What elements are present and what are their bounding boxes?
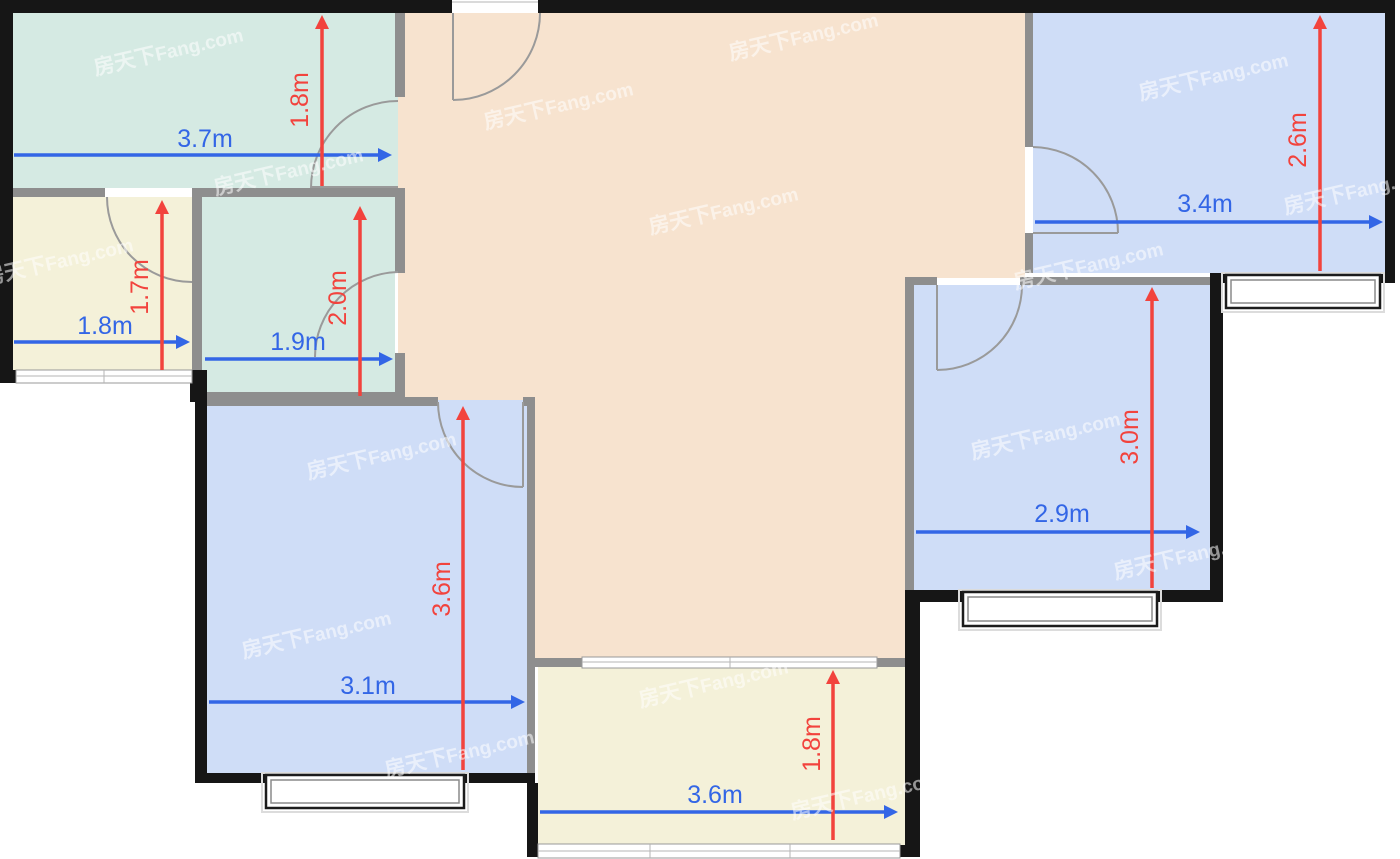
dim-balcony-width: 3.6m: [687, 781, 743, 809]
wall-segment: [0, 13, 13, 383]
wall-segment: [905, 277, 937, 285]
dim-bedroom-tr-width: 3.4m: [1177, 190, 1233, 218]
wall-segment: [527, 397, 535, 783]
room-bath-small: [13, 197, 192, 373]
wall-segment: [1385, 13, 1395, 283]
dim-kitchen-height: 1.8m: [286, 72, 314, 128]
dim-bedroom-right-height: 3.0m: [1116, 409, 1144, 465]
wall-segment: [905, 602, 920, 857]
wall-segment: [395, 13, 405, 97]
wall-segment: [395, 188, 405, 273]
dim-bedroom-tr-height: 2.6m: [1284, 112, 1312, 168]
wall-segment: [0, 0, 452, 13]
dim-bedroom-left-width: 3.1m: [340, 672, 396, 700]
wall-segment: [195, 373, 207, 783]
wall-segment: [13, 188, 105, 197]
wall-segment: [192, 197, 202, 373]
wall-segment: [395, 353, 405, 398]
dim-bath-large-height: 2.0m: [324, 270, 352, 326]
dim-bath-small-height: 1.7m: [126, 259, 154, 315]
dim-bedroom-right-width: 2.9m: [1034, 500, 1090, 528]
dim-bath-large-width: 1.9m: [270, 328, 326, 356]
room-bath-large: [202, 197, 395, 392]
floorplan: 3.7m 1.8m 1.8m 1.7m 1.9m 2.0m 3.4m 2.6m …: [0, 0, 1400, 859]
dim-kitchen-width: 3.7m: [177, 125, 233, 153]
floorplan-svg: 3.7m 1.8m 1.8m 1.7m 1.9m 2.0m 3.4m 2.6m …: [0, 0, 1400, 859]
wall-segment: [1025, 13, 1033, 147]
wall-segment: [905, 285, 914, 602]
wall-segment: [538, 0, 1395, 13]
wall-segment: [195, 397, 438, 406]
room-living-upper: [398, 13, 1025, 278]
dim-bedroom-left-height: 3.6m: [428, 561, 456, 617]
dim-bath-small-width: 1.8m: [77, 312, 133, 340]
dim-balcony-height: 1.8m: [798, 716, 826, 772]
